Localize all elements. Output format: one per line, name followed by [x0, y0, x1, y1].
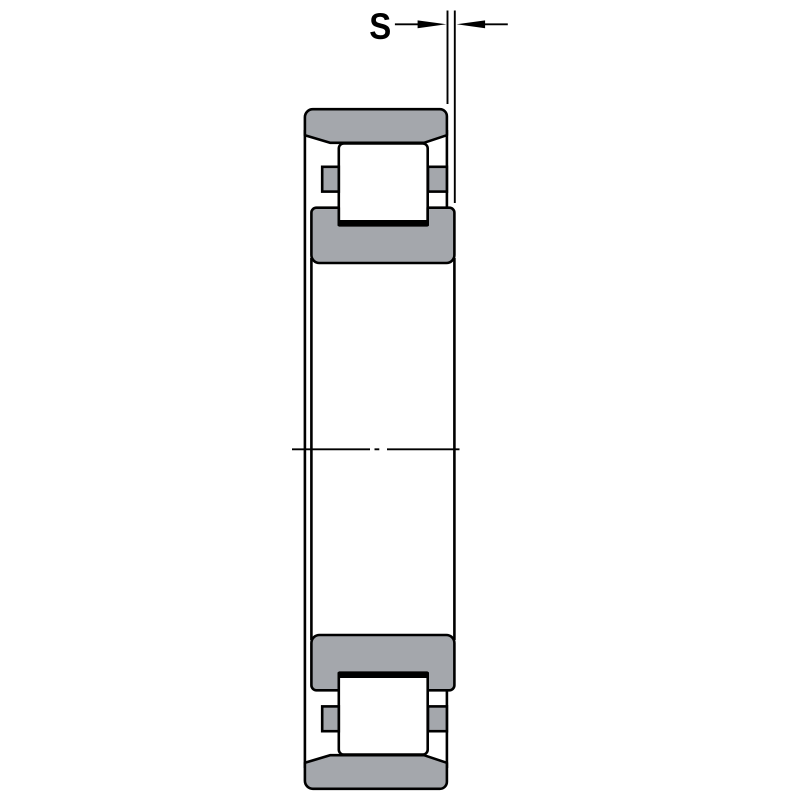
svg-text:S: S — [369, 6, 391, 47]
